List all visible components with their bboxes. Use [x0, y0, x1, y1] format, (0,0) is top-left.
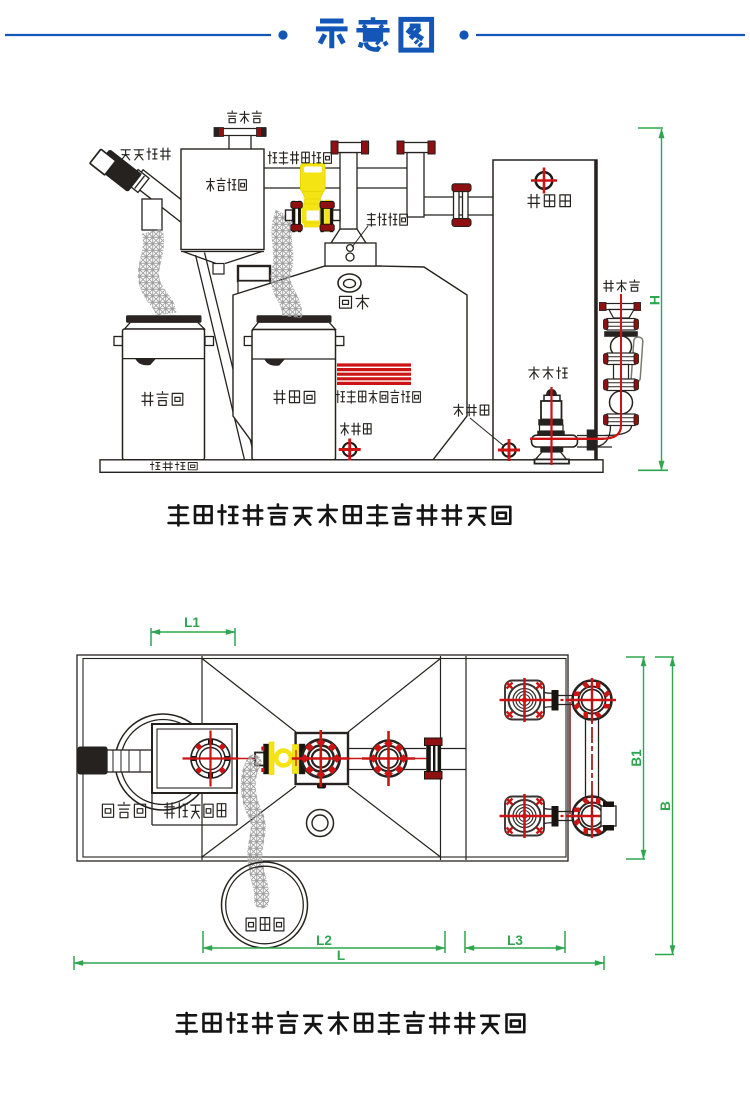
- svg-text:L1: L1: [184, 615, 200, 630]
- svg-text:B: B: [658, 801, 673, 811]
- svg-text:L2: L2: [316, 933, 332, 948]
- svg-text:L3: L3: [507, 933, 523, 948]
- svg-text:H: H: [647, 295, 663, 305]
- svg-text:B1: B1: [629, 749, 644, 767]
- svg-text:L: L: [337, 948, 345, 963]
